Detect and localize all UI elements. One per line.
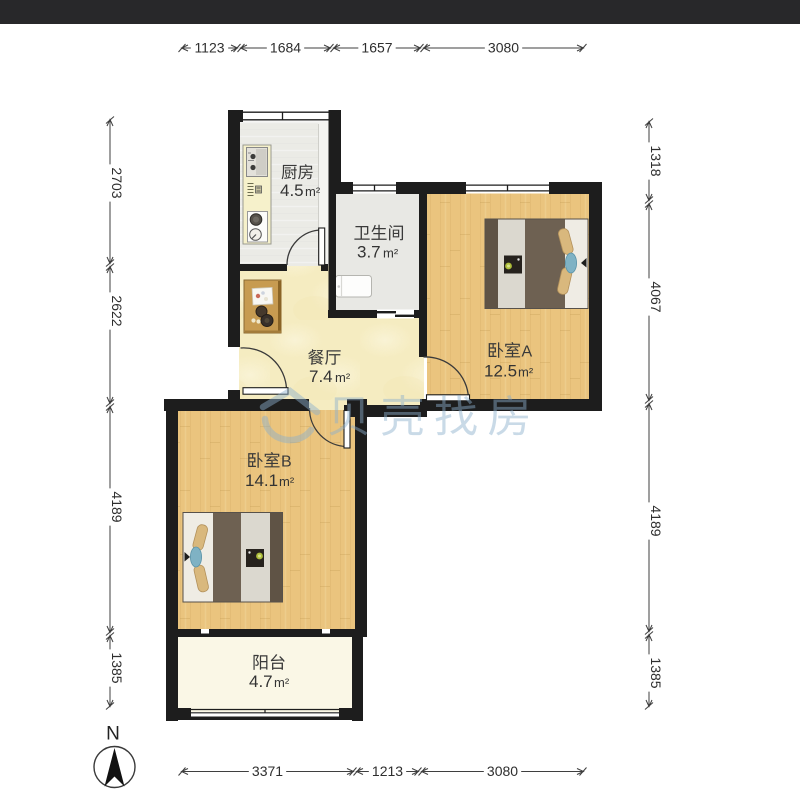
svg-text:1385: 1385 [648,657,664,688]
svg-text:4067: 4067 [648,281,664,312]
svg-text:3080: 3080 [487,763,518,779]
svg-text:7.4: 7.4 [309,367,333,386]
svg-text:m²: m² [279,474,295,489]
svg-text:1385: 1385 [109,652,125,683]
svg-text:1657: 1657 [361,40,392,56]
svg-text:14.1: 14.1 [245,471,278,490]
svg-text:4189: 4189 [648,505,664,536]
svg-text:1123: 1123 [194,40,224,56]
svg-text:12.5: 12.5 [484,362,517,381]
svg-text:m²: m² [335,370,351,385]
svg-text:3080: 3080 [488,40,519,56]
svg-text:4.7: 4.7 [249,672,273,691]
svg-text:B: B [281,454,292,471]
svg-text:3371: 3371 [252,763,283,779]
svg-text:m²: m² [274,675,290,690]
svg-text:1213: 1213 [372,763,403,779]
svg-text:1684: 1684 [270,40,301,56]
svg-text:4189: 4189 [109,491,125,522]
svg-text:N: N [106,724,120,745]
svg-text:m²: m² [518,365,534,380]
svg-text:2622: 2622 [109,295,125,326]
svg-text:1318: 1318 [648,145,664,176]
svg-text:A: A [522,344,533,361]
svg-text:2703: 2703 [109,167,125,198]
svg-text:m²: m² [305,184,321,199]
svg-text:3.7: 3.7 [357,243,381,262]
svg-text:m²: m² [383,246,399,261]
svg-text:4.5: 4.5 [280,181,304,200]
